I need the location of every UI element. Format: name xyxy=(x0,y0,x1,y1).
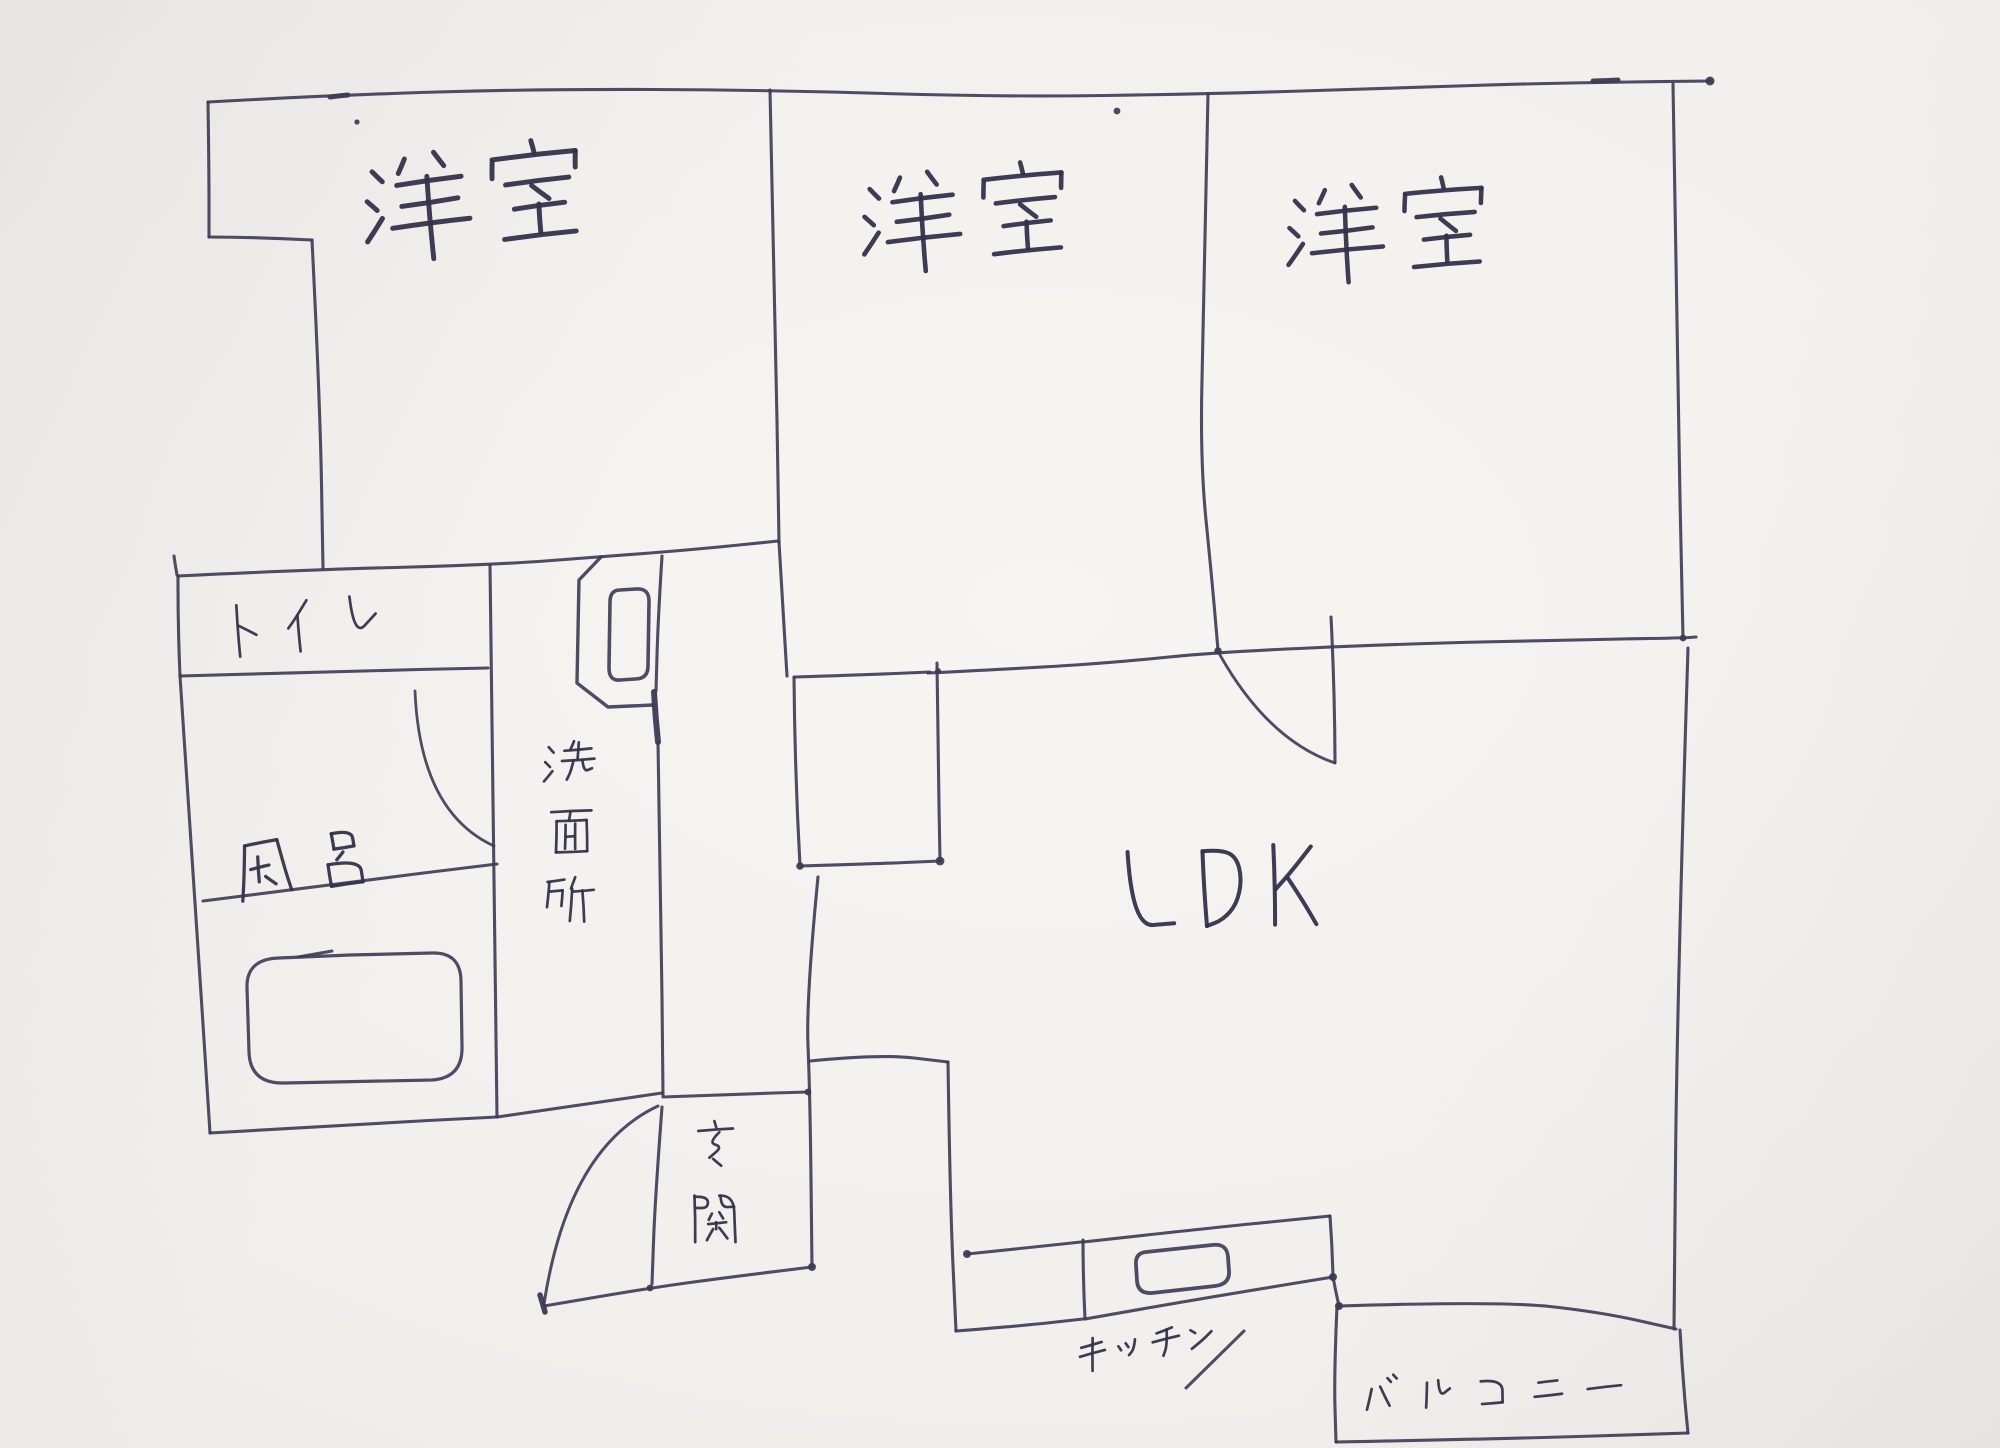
glyph-stroke xyxy=(569,812,570,820)
room-label-bedroom-1 xyxy=(361,138,582,264)
wall-bedroom1-left xyxy=(312,240,323,568)
wall-divider-1 xyxy=(770,90,779,542)
glyph-stroke xyxy=(238,624,256,636)
room-label-bedroom-3 xyxy=(1286,176,1485,284)
glyph-stroke xyxy=(1126,1343,1129,1347)
glyph-stroke xyxy=(539,204,541,232)
glyph-stroke xyxy=(1190,1331,1214,1349)
glyph-stroke xyxy=(1438,1380,1450,1394)
glyph-stroke xyxy=(863,233,879,255)
glyph-stroke xyxy=(994,247,1061,254)
glyph-stroke xyxy=(556,851,587,852)
glyph-stroke xyxy=(698,1129,733,1132)
ink-dot xyxy=(647,1285,654,1292)
glyph-stroke xyxy=(297,616,300,652)
glyph-stroke xyxy=(1405,188,1482,194)
ink-dot xyxy=(1114,108,1121,115)
glyph-stroke xyxy=(336,852,344,860)
glyph-stroke xyxy=(549,890,562,891)
wall-closet-bottom xyxy=(800,861,940,866)
wall-washroom-bottom xyxy=(497,1093,662,1117)
glyph-stroke xyxy=(556,821,557,852)
glyph-stroke xyxy=(1295,201,1304,211)
glyph-stroke xyxy=(1538,1380,1557,1382)
glyph-stroke xyxy=(719,1228,727,1239)
ink-dot xyxy=(935,668,941,674)
room-label-bedroom-2 xyxy=(860,160,1066,274)
glyph-stroke xyxy=(1393,1375,1396,1379)
glyph-stroke xyxy=(1416,212,1474,217)
wall-notch-bottom xyxy=(209,237,312,240)
glyph-stroke xyxy=(582,760,592,770)
wall-balcony-step xyxy=(1333,1277,1339,1306)
wall-closet-top xyxy=(795,672,930,677)
room-label-entrance xyxy=(695,1121,736,1242)
glyph-stroke xyxy=(709,1132,719,1157)
glyph-stroke xyxy=(870,189,879,199)
glyph-stroke xyxy=(1345,207,1349,283)
glyph-stroke xyxy=(561,890,562,906)
glyph-stroke xyxy=(545,762,550,767)
wall-closet-left xyxy=(794,677,800,866)
wall-toilet-tick xyxy=(174,556,177,575)
room-label-kitchen xyxy=(1078,1322,1215,1373)
glyph-stroke xyxy=(1190,1330,1195,1334)
wall-bath-bottom xyxy=(210,1117,497,1133)
glyph-stroke xyxy=(571,877,575,888)
wall-service-top xyxy=(178,541,778,576)
glyph-stroke xyxy=(893,178,900,192)
glyph-stroke xyxy=(266,875,276,885)
ink-dot xyxy=(936,857,945,866)
wall-divider-1-lower xyxy=(779,542,787,676)
glyph-stroke xyxy=(1366,1389,1372,1410)
wall-counter-bottom xyxy=(1085,1277,1333,1319)
ink-dots xyxy=(354,77,1714,1311)
walls xyxy=(174,81,1710,1442)
ink-dot xyxy=(963,1250,971,1258)
glyph-stroke xyxy=(349,594,376,628)
glyph-stroke xyxy=(582,890,584,921)
glyph-stroke xyxy=(1288,244,1304,265)
glyph-stroke xyxy=(865,216,874,225)
glyph-stroke xyxy=(532,184,549,199)
kitchen-label-slash xyxy=(1186,1331,1244,1388)
glyph-stroke xyxy=(983,182,985,197)
fixtures xyxy=(247,557,1335,1388)
ink-overdraw xyxy=(1593,80,1618,81)
glyph-stroke xyxy=(331,834,334,850)
glyph-stroke xyxy=(328,865,331,887)
wall-notch-left xyxy=(208,102,209,237)
glyph-stroke xyxy=(1060,172,1062,187)
glyph-stroke xyxy=(1026,222,1028,248)
wall-wet-area-right xyxy=(490,565,497,1117)
entrance-door-swing xyxy=(544,1106,658,1304)
glyph-stroke xyxy=(695,1196,696,1243)
glyph-stroke xyxy=(574,151,576,168)
glyph-stroke xyxy=(562,759,594,761)
ink-dot xyxy=(1329,1273,1337,1281)
glyph-stroke xyxy=(1118,1346,1121,1350)
room-label-ldk xyxy=(1127,844,1316,931)
wall-ldk-door-jamb xyxy=(1331,617,1335,762)
glyph-stroke xyxy=(244,840,277,846)
ink-dot xyxy=(1214,647,1222,655)
glyph-stroke xyxy=(1288,877,1317,925)
room-label-balcony xyxy=(1366,1367,1622,1410)
glyph-stroke xyxy=(1387,1378,1390,1382)
glyph-stroke xyxy=(433,152,443,167)
glyph-stroke xyxy=(1441,177,1444,188)
kitchen-sink xyxy=(1136,1245,1229,1293)
wall-counter-top xyxy=(1083,1216,1330,1242)
wall-ldk-top xyxy=(928,637,1696,673)
wall-counter-upper xyxy=(967,1242,1081,1254)
glyph-stroke xyxy=(714,1121,716,1127)
wall-ldk-right xyxy=(1674,648,1688,1329)
wall-closet-right xyxy=(937,663,940,861)
glyph-stroke xyxy=(236,605,241,656)
wall-counter-left-jamb xyxy=(1083,1240,1085,1319)
glyph-stroke xyxy=(1352,185,1361,198)
wall-washroom-right-lower xyxy=(658,742,663,1095)
glyph-stroke xyxy=(334,846,354,849)
wall-corridor-east xyxy=(948,1062,956,1331)
glyph-stroke xyxy=(996,197,1055,203)
glyph-stroke xyxy=(1446,236,1447,262)
glyph-stroke xyxy=(366,218,384,241)
glyph-stroke xyxy=(372,171,382,182)
glyph-stroke xyxy=(1440,218,1456,231)
wall-bath-left xyxy=(180,676,210,1133)
ink-dot xyxy=(1680,635,1687,642)
wall-corridor-top xyxy=(810,1057,948,1062)
glyph-stroke xyxy=(1128,850,1175,925)
glyph-stroke xyxy=(921,194,926,271)
floor-plan-photo: 洋室 洋室 洋室 トイレ 風呂 洗面所 LDK 玄関 キッチン バルコニー xyxy=(0,0,2000,1448)
glyph-stroke xyxy=(1289,228,1298,237)
glyph-stroke xyxy=(491,162,493,179)
wall-counter-right xyxy=(1330,1216,1333,1277)
glyph-stroke xyxy=(397,159,405,174)
glyph-stroke xyxy=(567,761,574,780)
glyph-stroke xyxy=(1156,1327,1172,1333)
glyph-stroke xyxy=(578,742,579,758)
wall-entrance-bottom xyxy=(544,1267,812,1306)
glyph-stroke xyxy=(1274,846,1312,889)
glyph-stroke xyxy=(1404,196,1406,211)
glyph-stroke xyxy=(1020,162,1023,173)
wall-top-outer xyxy=(208,81,1710,102)
glyph-stroke xyxy=(1482,1402,1503,1404)
wall-balcony-bottom xyxy=(1336,1433,1688,1442)
glyph-stroke xyxy=(1202,851,1207,926)
wash-basin-outline xyxy=(577,557,653,707)
room-label-bath xyxy=(236,830,364,901)
ink-overdraw xyxy=(330,95,348,97)
wall-ldk-bottom xyxy=(956,1319,1083,1331)
glyph-stroke xyxy=(547,882,549,907)
glyph-stroke xyxy=(331,882,363,887)
wall-balcony-left xyxy=(1335,1306,1337,1442)
glyph-stroke xyxy=(1480,188,1482,203)
glyph-stroke xyxy=(1481,1380,1503,1403)
glyph-stroke xyxy=(1380,1386,1389,1406)
glyph-stroke xyxy=(570,741,574,749)
room-label-washroom xyxy=(544,741,594,921)
glyph-stroke xyxy=(1020,204,1036,218)
ink-dot xyxy=(1706,77,1715,86)
wall-divider-2 xyxy=(1202,94,1219,650)
wall-balcony-top xyxy=(1339,1304,1676,1329)
glyph-stroke xyxy=(1160,1329,1170,1355)
glyph-stroke xyxy=(713,1159,721,1166)
glyph-stroke xyxy=(566,836,576,837)
room-labels xyxy=(236,138,1622,1410)
glyph-stroke xyxy=(427,176,434,258)
glyph-stroke xyxy=(1588,1385,1622,1389)
glyph-stroke xyxy=(927,171,936,185)
wall-toilet-left xyxy=(178,576,180,676)
bathtub xyxy=(247,953,462,1083)
glyph-stroke xyxy=(544,771,552,781)
glyph-stroke xyxy=(719,1212,723,1218)
glyph-stroke xyxy=(531,140,534,152)
glyph-stroke xyxy=(557,820,587,821)
glyph-stroke xyxy=(505,177,569,185)
ink-dot xyxy=(808,1263,816,1271)
glyph-stroke xyxy=(709,1214,712,1220)
wall-corridor-west xyxy=(808,877,818,1267)
glyph-stroke xyxy=(236,846,251,901)
wall-entrance-left-jamb xyxy=(652,1107,662,1284)
ink-overdraw xyxy=(654,692,658,742)
glyph-stroke xyxy=(1535,1394,1563,1397)
floor-plan-sketch xyxy=(0,0,2000,1448)
ink-dot xyxy=(1335,1302,1343,1310)
bath-door-swing xyxy=(415,691,494,846)
glyph-stroke xyxy=(1425,1383,1428,1408)
ink-dot xyxy=(805,1089,812,1096)
wall-bedroom3-right xyxy=(1673,84,1683,638)
glyph-stroke xyxy=(983,172,1061,179)
glyph-stroke xyxy=(1414,261,1480,266)
ink-dot xyxy=(354,119,359,124)
wall-balcony-right xyxy=(1680,1330,1688,1433)
glyph-stroke xyxy=(1272,845,1276,925)
glyph-stroke xyxy=(1318,190,1325,203)
glyph-stroke xyxy=(695,1197,708,1208)
wall-entrance-top xyxy=(663,1092,808,1097)
ldk-door-swing xyxy=(1220,655,1335,763)
glyph-stroke xyxy=(367,201,377,211)
ink-dot xyxy=(796,862,804,870)
wash-basin-bowl xyxy=(609,589,649,680)
room-label-toilet xyxy=(236,593,379,656)
wall-washroom-right-upper xyxy=(656,556,662,691)
glyph-stroke xyxy=(570,889,572,921)
wall-toilet-bottom xyxy=(180,668,488,676)
glyph-stroke xyxy=(277,839,292,891)
glyph-stroke xyxy=(587,820,588,851)
glyph-stroke xyxy=(707,1229,713,1240)
glyph-stroke xyxy=(1202,850,1242,926)
glyph-stroke xyxy=(549,747,554,752)
